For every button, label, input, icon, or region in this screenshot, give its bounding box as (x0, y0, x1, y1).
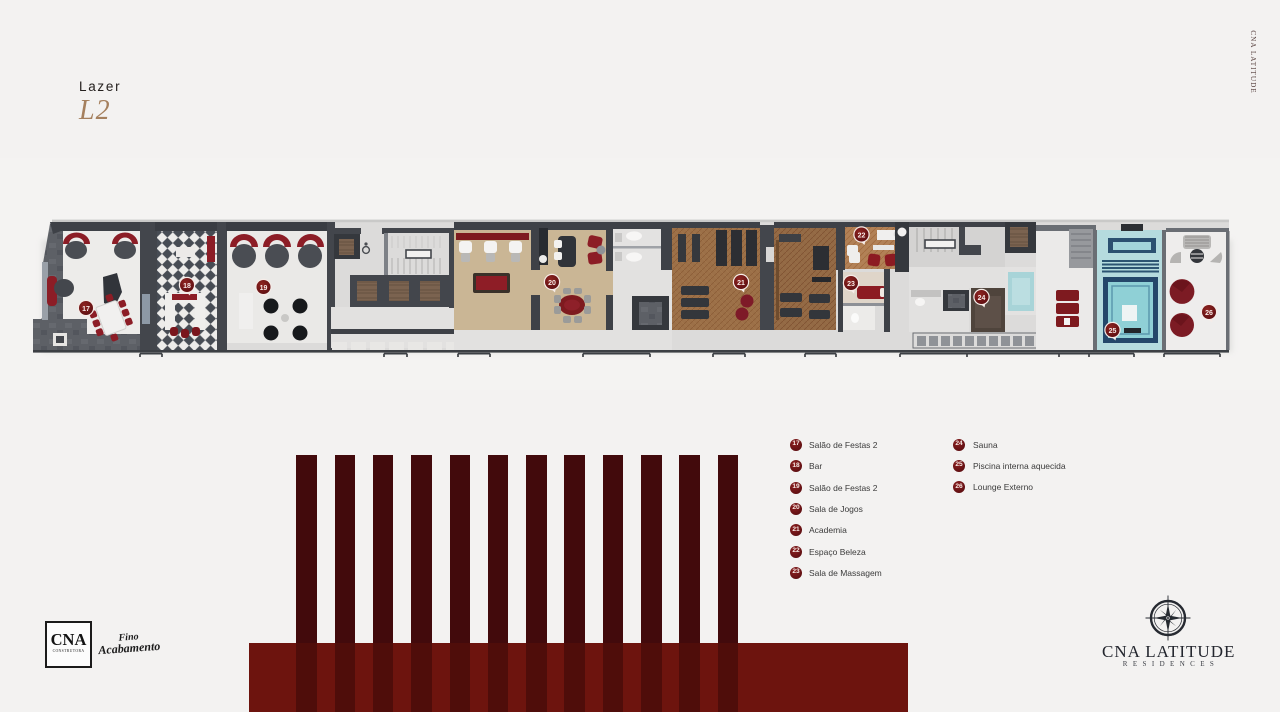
svg-text:23: 23 (847, 281, 855, 288)
svg-text:26: 26 (1205, 310, 1213, 317)
svg-text:21: 21 (737, 280, 745, 287)
svg-text:24: 24 (978, 295, 986, 302)
svg-text:17: 17 (82, 306, 90, 313)
svg-text:25: 25 (1109, 328, 1117, 335)
svg-text:18: 18 (183, 283, 191, 290)
svg-text:22: 22 (858, 232, 866, 239)
svg-text:20: 20 (548, 280, 556, 287)
svg-text:19: 19 (260, 285, 268, 292)
